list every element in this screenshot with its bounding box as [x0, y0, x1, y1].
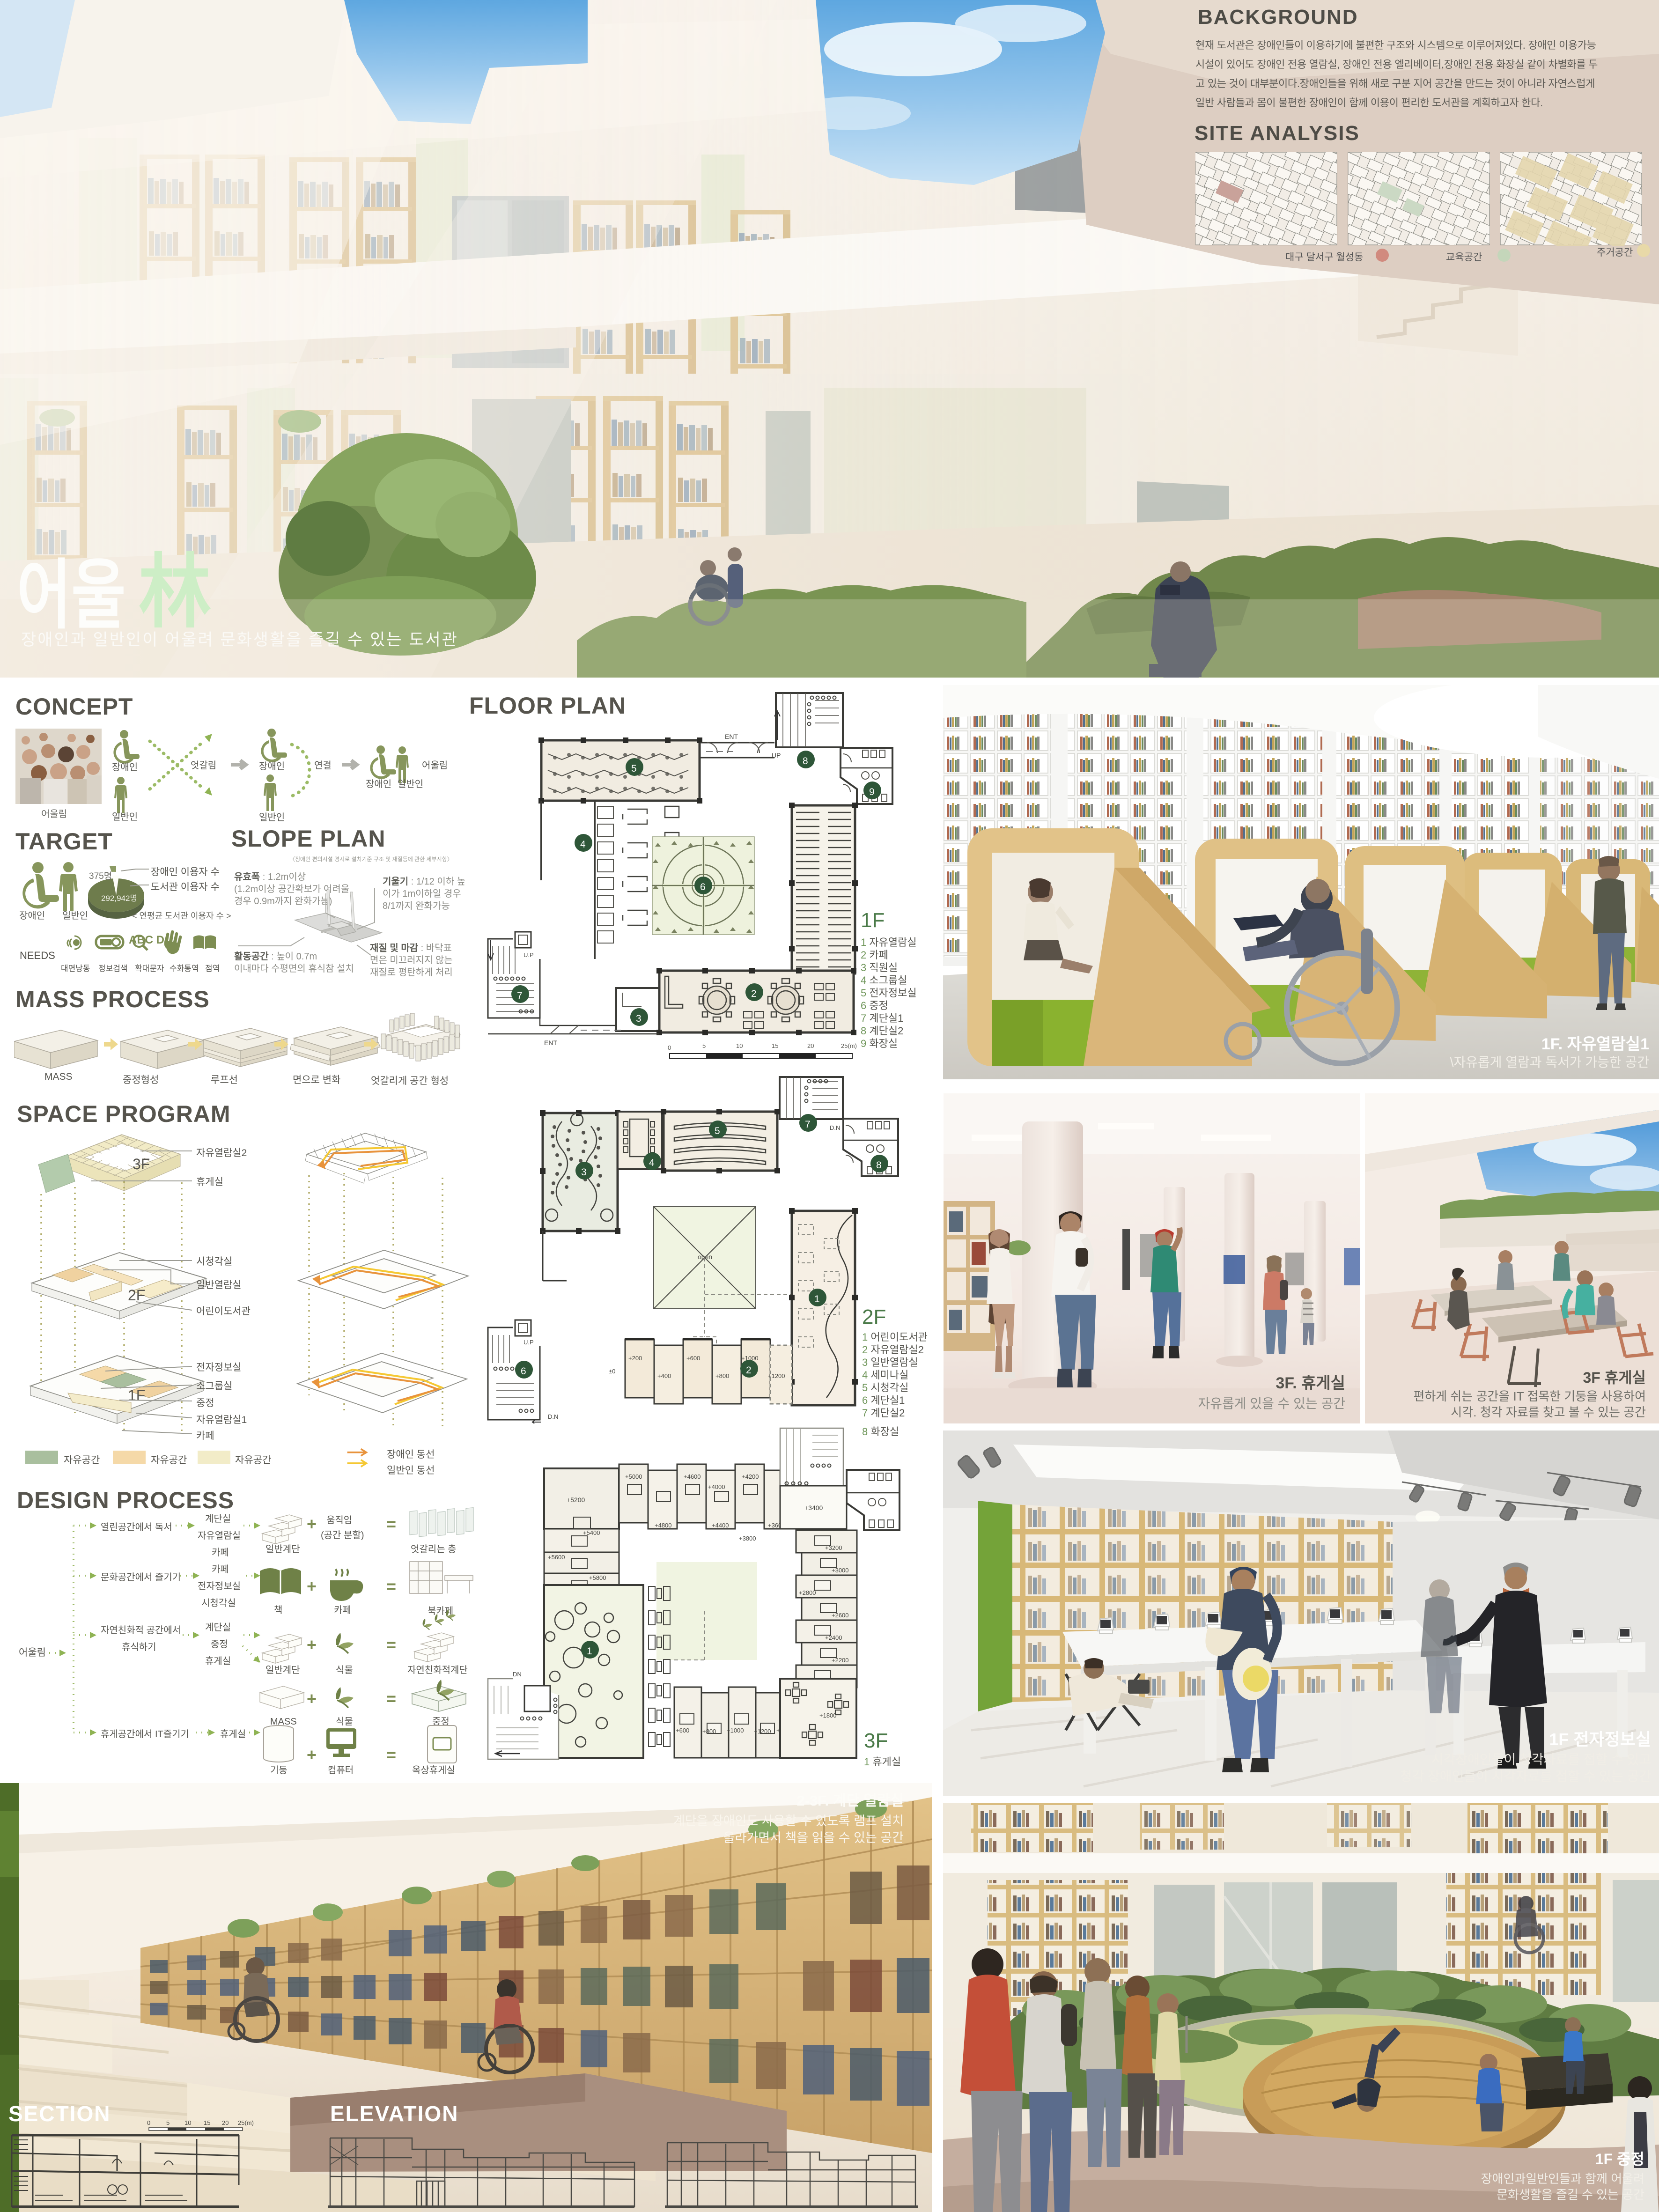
- svg-text:2 카페: 2 카페: [861, 949, 888, 961]
- svg-text:+1200: +1200: [768, 1372, 785, 1379]
- svg-text:1: 1: [814, 1294, 820, 1305]
- svg-text:+4400: +4400: [712, 1522, 729, 1529]
- svg-text:+5800: +5800: [589, 1574, 606, 1581]
- svg-text:청각 장애인들이 시각자료를 접할 수 있는 공간: 청각 장애인들이 시각자료를 접할 수 있는 공간: [1400, 1769, 1651, 1784]
- svg-text:ENT: ENT: [725, 733, 738, 740]
- svg-text:4 세미나실: 4 세미나실: [862, 1369, 908, 1381]
- svg-text:휴게실: 휴게실: [205, 1656, 231, 1666]
- svg-text:북카페: 북카페: [428, 1606, 453, 1616]
- svg-text:+2200: +2200: [832, 1657, 849, 1664]
- svg-text:+: +: [307, 1577, 317, 1596]
- svg-text:5: 5: [631, 763, 637, 774]
- svg-text:(공간 분할): (공간 분할): [321, 1530, 364, 1541]
- svg-text:자유롭게 있을 수 있는 공간: 자유롭게 있을 수 있는 공간: [1198, 1396, 1345, 1411]
- svg-text:3 일반열람실: 3 일반열람실: [862, 1357, 918, 1368]
- svg-text:5 시청각실: 5 시청각실: [862, 1382, 908, 1394]
- svg-text:6 중정: 6 중정: [861, 1000, 888, 1011]
- svg-text:U.P: U.P: [524, 951, 534, 959]
- svg-text:+800: +800: [702, 1728, 716, 1735]
- svg-text:1F. 자유열람실1: 1F. 자유열람실1: [1541, 1035, 1649, 1053]
- svg-text:5 전자정보실: 5 전자정보실: [861, 987, 917, 999]
- svg-text:U.P: U.P: [524, 1339, 534, 1346]
- svg-text:10: 10: [184, 2119, 191, 2126]
- svg-text:+3200: +3200: [825, 1544, 842, 1551]
- svg-text:10: 10: [736, 1042, 743, 1049]
- svg-text:일반인: 일반인: [259, 812, 285, 822]
- svg-text:7 계단실2: 7 계단실2: [862, 1407, 905, 1419]
- svg-text:2F: 2F: [862, 1305, 886, 1328]
- svg-text:+5600: +5600: [548, 1554, 565, 1561]
- svg-text:4 소그룹실: 4 소그룹실: [861, 974, 907, 986]
- svg-text:일반인: 일반인: [112, 811, 138, 822]
- svg-text:+5000: +5000: [625, 1473, 642, 1480]
- svg-text:카페: 카페: [212, 1564, 229, 1575]
- svg-text:3F 휴게실: 3F 휴게실: [1583, 1369, 1646, 1386]
- svg-text:전자정보실: 전자정보실: [198, 1581, 241, 1592]
- svg-text:일반계단: 일반계단: [265, 1665, 300, 1675]
- svg-text:+5400: +5400: [583, 1529, 600, 1536]
- svg-text:+4000: +4000: [708, 1483, 725, 1490]
- svg-text:시각. 청각 자료를 찾고 볼 수 있는 공간: 시각. 청각 자료를 찾고 볼 수 있는 공간: [1451, 1405, 1646, 1419]
- svg-text:옥상휴게실: 옥상휴게실: [412, 1765, 455, 1776]
- svg-text:1 휴게실: 1 휴게실: [864, 1756, 901, 1768]
- svg-text:+4200: +4200: [742, 1473, 759, 1480]
- svg-text:0: 0: [668, 1044, 671, 1051]
- svg-text:UP: UP: [772, 752, 781, 759]
- svg-text:D.N: D.N: [830, 1124, 840, 1131]
- svg-text:1F 중정: 1F 중정: [1595, 2151, 1644, 2168]
- svg-text:장애인: 장애인: [366, 779, 391, 789]
- svg-text:+600: +600: [686, 1355, 700, 1362]
- svg-text:일반계단: 일반계단: [265, 1544, 300, 1555]
- svg-text:=: =: [386, 1577, 396, 1596]
- svg-text:4: 4: [649, 1158, 655, 1168]
- svg-text:카페: 카페: [334, 1605, 351, 1615]
- svg-text:15: 15: [204, 2119, 210, 2126]
- svg-text:계단실: 계단실: [205, 1513, 231, 1524]
- svg-text:휴식하기: 휴식하기: [122, 1642, 156, 1652]
- svg-text:+1000: +1000: [727, 1727, 744, 1734]
- svg-text:=: =: [386, 1745, 396, 1764]
- svg-text:3 직원실: 3 직원실: [861, 962, 898, 973]
- svg-text:1 어린이도서관: 1 어린이도서관: [862, 1331, 928, 1343]
- svg-text:+400: +400: [657, 1372, 671, 1379]
- svg-text:20: 20: [807, 1042, 814, 1049]
- svg-text:+: +: [307, 1514, 317, 1534]
- svg-text:+3400: +3400: [804, 1504, 823, 1512]
- svg-text:20: 20: [222, 2119, 229, 2126]
- svg-text:2: 2: [751, 988, 757, 999]
- svg-text:카페: 카페: [212, 1547, 229, 1558]
- svg-text:문화생활을 즐길 수 있는 공간: 문화생활을 즐길 수 있는 공간: [1497, 2188, 1644, 2202]
- svg-text:7 계단실1: 7 계단실1: [861, 1012, 903, 1024]
- svg-text:편하게 쉬는 공간을 IT 접목한 기둥을 사용하여: 편하게 쉬는 공간을 IT 접목한 기둥을 사용하여: [1413, 1389, 1646, 1403]
- svg-text:계단을 장애인도 사용할 수 있도록 램프 설치: 계단을 장애인도 사용할 수 있도록 램프 설치: [673, 1814, 904, 1828]
- svg-text:6: 6: [700, 882, 706, 892]
- svg-text:연결: 연결: [314, 760, 332, 771]
- svg-text:+3000: +3000: [832, 1567, 849, 1574]
- svg-text:7: 7: [805, 1119, 811, 1130]
- svg-text:+600: +600: [676, 1727, 689, 1734]
- svg-text:8 계단실2: 8 계단실2: [861, 1025, 903, 1037]
- svg-text:8: 8: [876, 1160, 882, 1171]
- svg-text:장애인과일반인들과 함께 어울려: 장애인과일반인들과 함께 어울려: [1481, 2172, 1644, 2186]
- svg-text:9: 9: [869, 787, 875, 797]
- svg-text:5: 5: [715, 1126, 720, 1136]
- svg-text:움직임: 움직임: [326, 1515, 352, 1526]
- svg-text:5: 5: [166, 2119, 170, 2126]
- svg-text:9 화장실: 9 화장실: [861, 1038, 898, 1049]
- svg-text:0: 0: [147, 2119, 150, 2126]
- svg-text:4: 4: [580, 839, 586, 850]
- svg-text:일반인: 일반인: [398, 779, 423, 789]
- svg-text:25(m): 25(m): [238, 2119, 254, 2126]
- svg-text:컴퓨터: 컴퓨터: [328, 1765, 354, 1776]
- svg-text:휴게공간에서 IT즐기기: 휴게공간에서 IT즐기기: [101, 1729, 189, 1740]
- svg-text:\자유롭게 열람과 독서가 가능한 공간: \자유롭게 열람과 독서가 가능한 공간: [1450, 1055, 1649, 1069]
- svg-text:D.N: D.N: [548, 1413, 558, 1420]
- svg-text:+: +: [307, 1689, 317, 1708]
- svg-text:1F: 1F: [861, 909, 885, 932]
- svg-text:식물: 식물: [336, 1716, 353, 1727]
- svg-text:25(m): 25(m): [841, 1042, 857, 1049]
- svg-text:3F. 휴게실: 3F. 휴게실: [1276, 1374, 1345, 1392]
- svg-text:5: 5: [702, 1042, 706, 1049]
- svg-text:+: +: [307, 1745, 317, 1764]
- svg-text:8: 8: [803, 756, 808, 767]
- svg-text:ELEVATION: ELEVATION: [330, 2101, 458, 2126]
- svg-text:3: 3: [581, 1167, 587, 1178]
- svg-text:3F: 3F: [864, 1729, 888, 1752]
- svg-text:어울림: 어울림: [422, 760, 448, 771]
- svg-text:문화공간에서 즐기기: 문화공간에서 즐기기: [101, 1572, 181, 1583]
- svg-text:엇갈리는 층: 엇갈리는 층: [411, 1544, 457, 1555]
- svg-text:+4800: +4800: [655, 1522, 672, 1529]
- svg-text:+4600: +4600: [684, 1473, 701, 1480]
- svg-text:=: =: [386, 1689, 396, 1708]
- svg-text:=: =: [386, 1514, 396, 1534]
- svg-text:계단실: 계단실: [205, 1622, 231, 1633]
- svg-text:시청각실: 시청각실: [201, 1598, 236, 1608]
- svg-text:6: 6: [521, 1366, 526, 1377]
- svg-text:식물: 식물: [336, 1665, 353, 1675]
- svg-text:중정: 중정: [211, 1639, 228, 1650]
- svg-text:어울림: 어울림: [19, 1647, 46, 1658]
- svg-text:+2400: +2400: [825, 1634, 842, 1641]
- svg-text:올라가면서 책을 읽을 수 있는 공간: 올라가면서 책을 읽을 수 있는 공간: [723, 1831, 904, 1845]
- svg-text:+800: +800: [715, 1372, 729, 1379]
- svg-text:+: +: [307, 1635, 317, 1654]
- svg-text:+3800: +3800: [739, 1535, 756, 1542]
- svg-text:자연친화적 공간에서: 자연친화적 공간에서: [101, 1625, 181, 1636]
- svg-text:+1800: +1800: [819, 1712, 837, 1719]
- svg-text:기둥: 기둥: [270, 1765, 288, 1776]
- svg-text:장애인: 장애인: [19, 910, 45, 921]
- svg-text:15: 15: [772, 1042, 778, 1049]
- svg-text:+1200: +1200: [754, 1728, 771, 1735]
- svg-text:7: 7: [517, 990, 523, 1001]
- svg-text:1: 1: [587, 1646, 592, 1657]
- svg-text:2 자유열람실2: 2 자유열람실2: [862, 1344, 924, 1356]
- svg-text:3: 3: [636, 1013, 641, 1024]
- svg-text:SECTION: SECTION: [8, 2101, 111, 2126]
- svg-text:1F 전자정보실: 1F 전자정보실: [1549, 1730, 1651, 1749]
- svg-text:장애인: 장애인: [259, 761, 285, 772]
- svg-text:자연친화적계단: 자연친화적계단: [407, 1665, 468, 1675]
- svg-text:6 계단실1: 6 계단실1: [862, 1394, 905, 1406]
- svg-text:+200: +200: [628, 1355, 642, 1362]
- svg-text:장애인: 장애인: [112, 762, 138, 773]
- svg-text:=: =: [386, 1635, 396, 1654]
- svg-text:자유열람실: 자유열람실: [198, 1530, 241, 1541]
- svg-text:2-3F. 계단 열람실: 2-3F. 계단 열람실: [796, 1792, 904, 1809]
- svg-text:+5200: +5200: [567, 1496, 585, 1504]
- svg-text:시각장애인들이 청각자료를 접할 수 있고: 시각장애인들이 청각자료를 접할 수 있고: [1431, 1752, 1651, 1767]
- svg-text:엇갈림: 엇갈림: [191, 760, 216, 771]
- svg-text:ENT: ENT: [544, 1039, 557, 1047]
- svg-text:열린공간에서 독서: 열린공간에서 독서: [101, 1522, 172, 1533]
- svg-text:DN: DN: [513, 1671, 522, 1678]
- svg-text:2: 2: [746, 1365, 752, 1376]
- svg-text:+2600: +2600: [832, 1612, 849, 1619]
- svg-text:1 자유열람실: 1 자유열람실: [861, 936, 917, 948]
- svg-text:+2800: +2800: [799, 1589, 816, 1596]
- svg-text:휴게실: 휴게실: [220, 1729, 246, 1740]
- svg-text:±0: ±0: [609, 1368, 615, 1375]
- svg-text:책: 책: [274, 1605, 282, 1615]
